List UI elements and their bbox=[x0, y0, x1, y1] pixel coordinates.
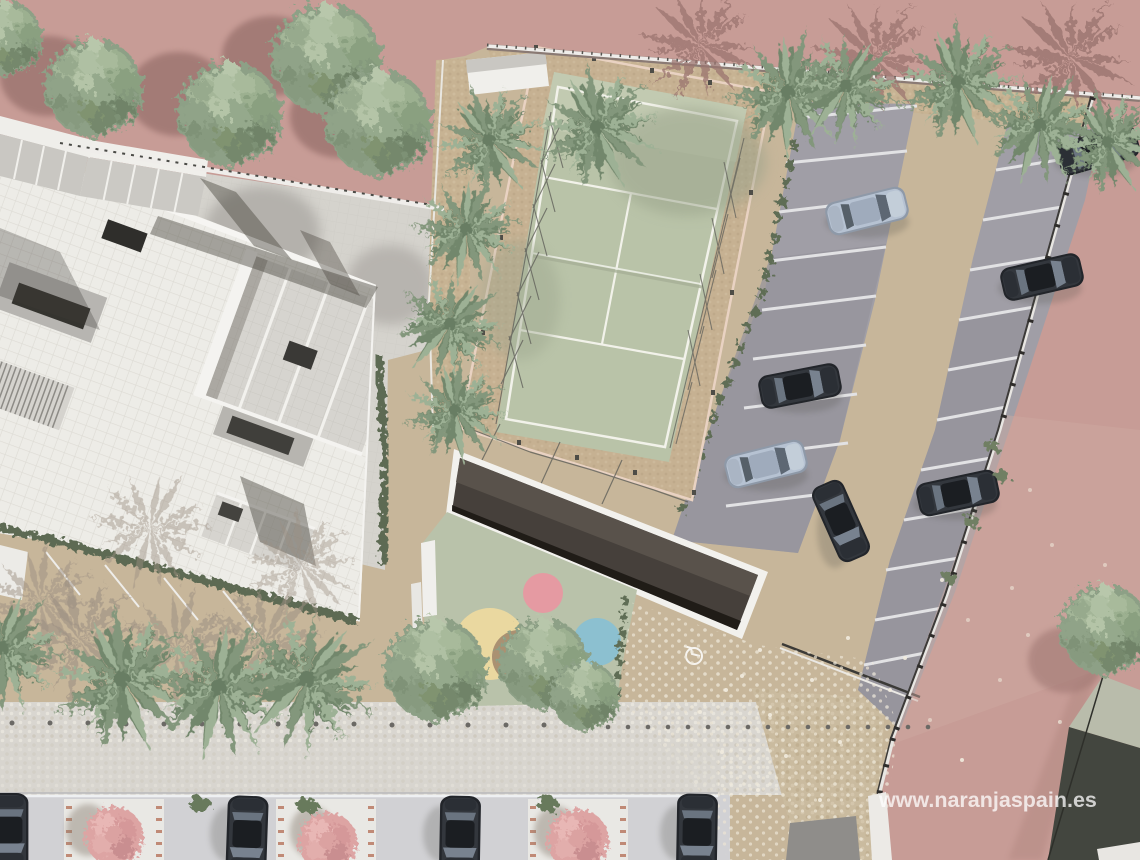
svg-text:www.naranjaspain.es: www.naranjaspain.es bbox=[878, 788, 1097, 812]
